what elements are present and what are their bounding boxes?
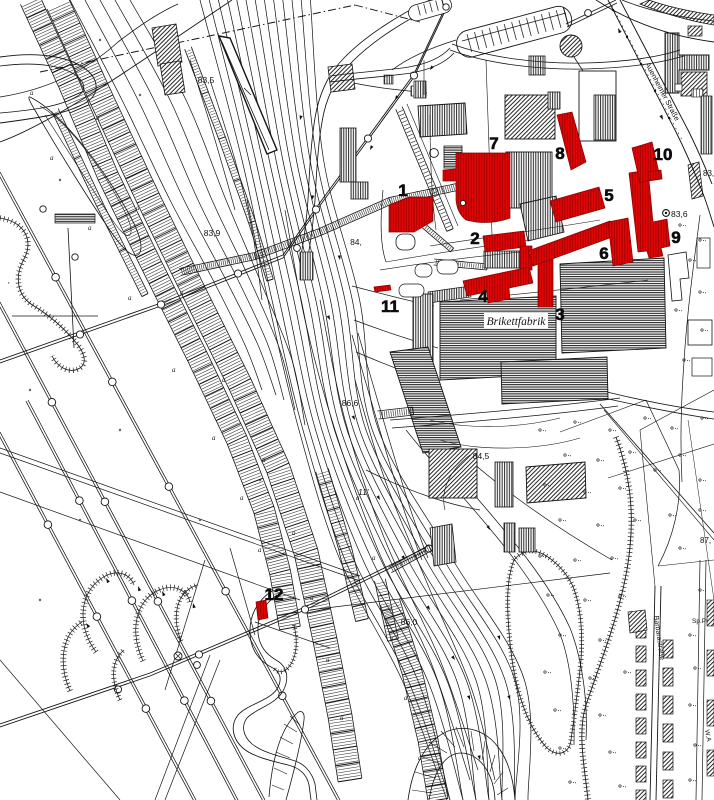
svg-text:a: a: [262, 456, 266, 464]
svg-text:a: a: [310, 594, 314, 602]
svg-text:83,9: 83,9: [204, 228, 221, 238]
svg-text:87,: 87,: [700, 536, 711, 545]
svg-text:8: 8: [555, 144, 564, 163]
svg-text:84,5: 84,5: [473, 451, 490, 461]
svg-text:a: a: [356, 494, 360, 502]
svg-text:83,6: 83,6: [671, 209, 688, 219]
svg-text:12: 12: [265, 585, 284, 604]
svg-text:a: a: [88, 224, 92, 232]
svg-text:11′: 11′: [358, 487, 369, 497]
svg-text:a: a: [128, 294, 132, 302]
svg-text:7: 7: [489, 134, 498, 153]
svg-text:Sp.Pl: Sp.Pl: [692, 618, 708, 625]
svg-text:a: a: [340, 714, 344, 722]
svg-text:a: a: [180, 289, 184, 297]
svg-text:a: a: [240, 494, 244, 502]
svg-text:a: a: [212, 434, 216, 442]
svg-text:Brikettfabrik: Brikettfabrik: [487, 316, 547, 328]
svg-text:a: a: [50, 154, 54, 162]
svg-text:a: a: [96, 114, 100, 122]
svg-text:5: 5: [604, 186, 613, 205]
svg-text:86,6: 86,6: [342, 398, 359, 408]
svg-text:3: 3: [555, 305, 564, 324]
svg-text:86,0: 86,0: [401, 617, 418, 627]
svg-text:a: a: [172, 366, 176, 374]
svg-text:6: 6: [599, 244, 608, 263]
svg-text:a: a: [404, 694, 408, 702]
svg-text:83,: 83,: [703, 169, 714, 178]
svg-text:a: a: [372, 554, 376, 562]
svg-text:9: 9: [671, 228, 680, 247]
svg-text:1: 1: [398, 181, 407, 200]
svg-text:84,: 84,: [350, 237, 362, 247]
svg-text:10: 10: [654, 145, 673, 164]
svg-text:a: a: [292, 529, 296, 537]
svg-text:a: a: [30, 89, 34, 97]
svg-text:83,5: 83,5: [198, 75, 215, 85]
svg-text:a: a: [258, 546, 262, 554]
svg-text:2: 2: [470, 229, 479, 248]
svg-text:a: a: [222, 376, 226, 384]
svg-text:4: 4: [478, 287, 488, 306]
svg-text:a: a: [418, 754, 422, 762]
svg-text:11: 11: [381, 297, 399, 316]
svg-text:a: a: [136, 204, 140, 212]
svg-text:a: a: [326, 656, 330, 664]
svg-text:a: a: [390, 634, 394, 642]
